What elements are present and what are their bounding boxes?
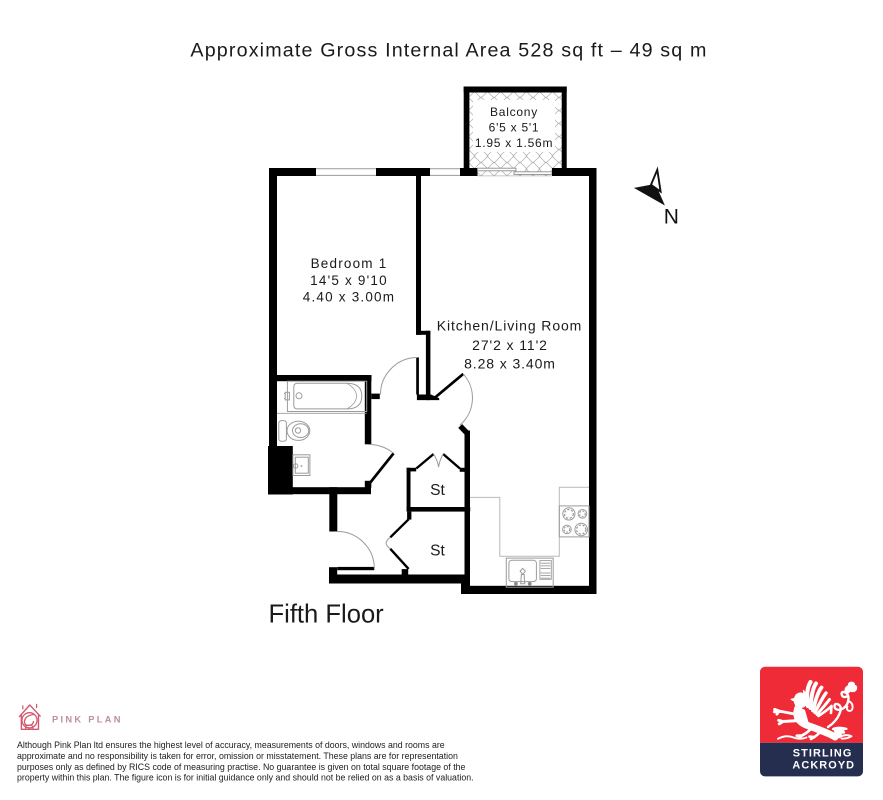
svg-text:Kitchen/Living Room: Kitchen/Living Room	[437, 318, 583, 334]
svg-text:Although Pink Plan ltd ensures: Although Pink Plan ltd ensures the highe…	[17, 740, 445, 750]
svg-text:purposes only as defined by RI: purposes only as defined by RICS code of…	[17, 762, 466, 772]
svg-text:N: N	[664, 206, 679, 229]
svg-text:ACKROYD: ACKROYD	[792, 760, 855, 772]
svg-text:Approximate Gross Internal Are: Approximate Gross Internal Area 528 sq f…	[190, 39, 707, 61]
svg-text:Balcony: Balcony	[490, 105, 538, 119]
svg-text:4.40 x 3.00m: 4.40 x 3.00m	[303, 290, 395, 305]
svg-text:STIRLING: STIRLING	[793, 748, 853, 760]
svg-text:27'2 x 11'2: 27'2 x 11'2	[472, 337, 548, 353]
svg-text:Fifth Floor: Fifth Floor	[269, 601, 385, 629]
svg-text:PINK PLAN: PINK PLAN	[52, 714, 123, 724]
svg-text:14'5 x 9'10: 14'5 x 9'10	[310, 273, 388, 288]
svg-text:property within this plan. The: property within this plan. The figure ic…	[17, 773, 474, 783]
svg-text:approximate and no responsibil: approximate and no responsibility is tak…	[17, 751, 458, 761]
svg-text:Bedroom 1: Bedroom 1	[311, 256, 388, 271]
svg-text:6'5 x 5'1: 6'5 x 5'1	[489, 121, 540, 135]
svg-text:8.28 x 3.40m: 8.28 x 3.40m	[464, 356, 556, 372]
svg-text:1.95 x 1.56m: 1.95 x 1.56m	[475, 136, 553, 150]
svg-text:St: St	[430, 542, 445, 559]
svg-text:St: St	[430, 482, 445, 499]
